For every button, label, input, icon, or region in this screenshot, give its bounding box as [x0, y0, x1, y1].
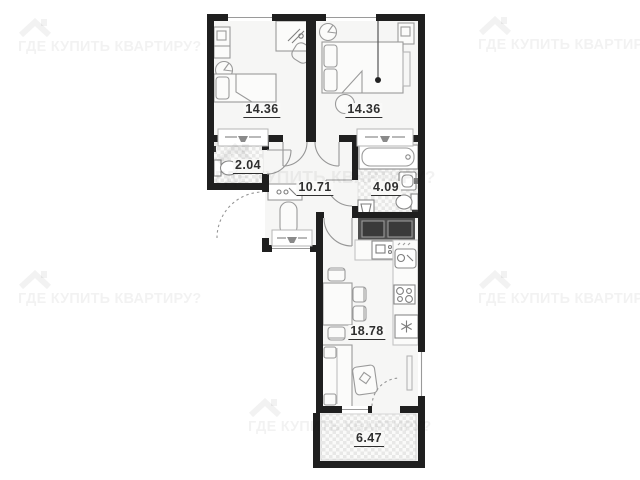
room-area-label-bathroom: 4.09 [371, 181, 401, 196]
radiator-icon [272, 230, 312, 246]
wall [368, 406, 372, 413]
apartment-floor-plan [0, 0, 640, 480]
room-area-label-hallway: 10.71 [296, 181, 333, 196]
wall [352, 142, 358, 180]
wall-balcony [313, 413, 320, 468]
dining-table-icon [323, 283, 352, 325]
wall [268, 135, 283, 142]
kitchen-sink-icon [395, 249, 416, 268]
room-area-label-kitchen-living: 18.78 [348, 325, 385, 340]
wall [316, 245, 323, 413]
room-area-label-bedroom-1: 14.36 [243, 103, 280, 118]
side-table-icon [352, 365, 378, 396]
wardrobe-icon [214, 27, 230, 58]
wall-balcony [418, 413, 425, 468]
room-area-label-bedroom-2: 14.36 [345, 103, 382, 118]
entrance-door-arc [217, 192, 263, 238]
pendant-dot [375, 77, 381, 83]
room-area-label-balcony: 6.47 [354, 432, 384, 447]
wall [352, 212, 421, 218]
wall [316, 406, 342, 413]
room-area-label-wc: 2.04 [233, 159, 263, 174]
wall [207, 14, 214, 190]
wall [352, 206, 358, 218]
wall [400, 406, 425, 413]
floor-plan-page: ГДЕ КУПИТЬ КВАРТИРУ? ГДЕ КУПИТЬ КВАРТИРУ… [0, 0, 640, 480]
wall [262, 174, 269, 190]
wall [207, 135, 218, 142]
wardrobe-icon [398, 23, 414, 44]
wall-bedroom-divider [306, 21, 316, 142]
radiator-icon [357, 129, 413, 146]
radiator-icon [218, 129, 268, 146]
toilet-icon [396, 195, 412, 209]
wall-balcony [313, 461, 425, 468]
wall [339, 135, 357, 142]
wall [413, 135, 418, 142]
faucet-icon [414, 178, 418, 184]
wall [316, 212, 324, 218]
wall [207, 183, 269, 190]
